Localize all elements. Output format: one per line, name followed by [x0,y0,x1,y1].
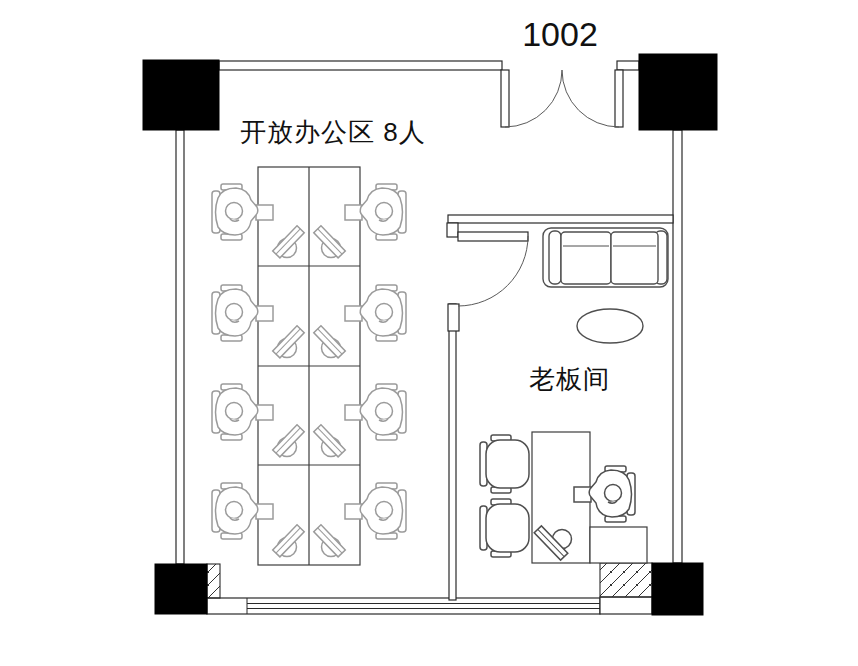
boss-desk-return [590,527,647,563]
door-leaf-left [501,70,509,127]
wall-hatch-bottom-right [600,563,652,597]
wall-segment-left [176,130,184,564]
floor-plan-page: 1002 开放办公区 8人 老板间 [0,0,858,666]
wall-hatch-bottom-left [207,564,220,598]
column-bottom-right [652,563,703,615]
column-top-right [639,54,717,130]
room-number-label: 1002 [522,15,598,53]
wall-segment-right [673,130,682,563]
guest-chair [480,435,529,493]
column-top-left [143,60,219,130]
boss-door-swing-arc [458,236,528,306]
floor-plan-drawing: 1002 开放办公区 8人 老板间 [0,0,858,666]
open-office-label: 开放办公区 8人 [240,117,426,147]
wall-segment-boss-top [448,215,673,223]
coffee-table [577,309,643,343]
door-leaf-right [615,70,623,127]
wall-segment-partition [449,304,456,600]
door-jamb-bottom [448,304,459,331]
door-jamb-top [447,223,458,237]
guest-chair [480,499,529,557]
door-swing-arc-right [562,70,619,127]
entrance-double-door [501,70,623,127]
wall-segment-top-right [617,61,639,70]
boss-door-leaf [458,232,528,241]
boss-office-label: 老板间 [529,364,610,394]
boss-room-furniture [480,228,668,563]
door-swing-arc-left [505,70,562,127]
wall-segment-top-left [219,61,502,70]
column-bottom-left [155,564,207,614]
sofa [543,228,668,287]
window-band-bottom [207,597,652,614]
